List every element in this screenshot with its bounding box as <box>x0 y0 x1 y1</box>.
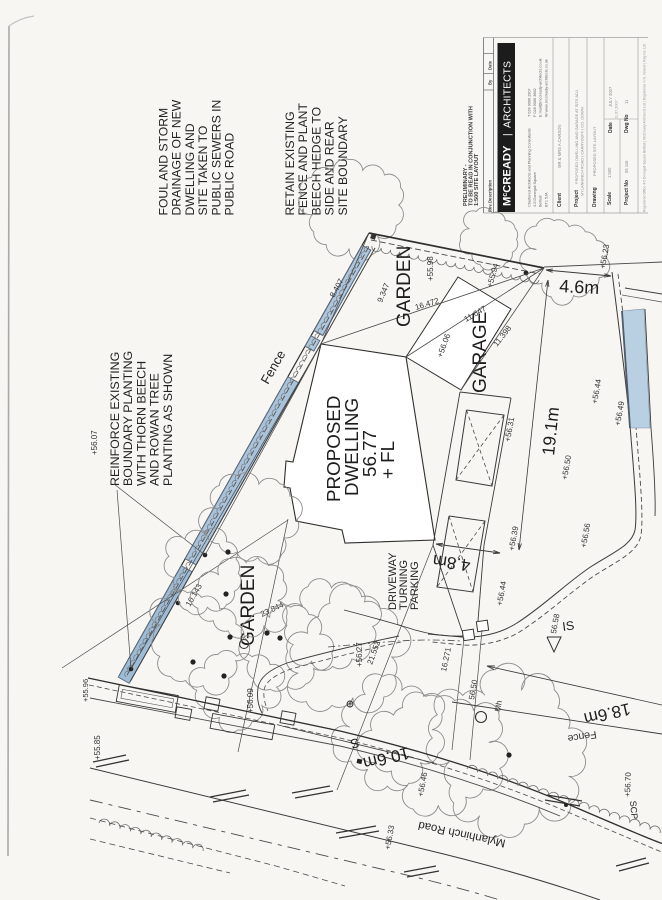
svg-text:DWELLING AND: DWELLING AND <box>183 123 197 215</box>
svg-text:PUBLIC SEWERS IN: PUBLIC SEWERS IN <box>209 100 223 216</box>
svg-text:FOUL AND STORM: FOUL AND STORM <box>157 108 171 216</box>
svg-text:AND ROWAN TREE: AND ROWAN TREE <box>148 373 162 486</box>
svg-text:Belfast: Belfast <box>539 194 543 207</box>
svg-text:By: By <box>488 79 493 85</box>
svg-text:PROPOSED SITE LAYOUT: PROPOSED SITE LAYOUT <box>592 126 597 176</box>
svg-text:+ FL: + FL <box>377 441 398 479</box>
svg-text:RETAIN EXISTING: RETAIN EXISTING <box>283 111 297 215</box>
svg-text:1:500 SITE LAYOUT: 1:500 SITE LAYOUT <box>474 153 480 206</box>
svg-text:Rev.: Rev. <box>488 203 493 212</box>
svg-text:ARCHITECTS: ARCHITECTS <box>503 61 514 128</box>
svg-text:11.07.2007: 11.07.2007 <box>615 100 619 119</box>
svg-text:Chartered Architects and Plann: Chartered Architects and Planning Consul… <box>528 128 532 207</box>
svg-text:SCP: SCP <box>628 800 640 819</box>
svg-text:PROPOSED DWELLING AND GARAGE A: PROPOSED DWELLING AND GARAGE AT SITE ADJ… <box>574 89 579 184</box>
svg-text:Date: Date <box>488 60 493 70</box>
svg-text:BT1 5JA: BT1 5JA <box>544 192 548 207</box>
svg-text:11: 11 <box>624 99 629 104</box>
svg-text:+55.98: +55.98 <box>426 256 435 281</box>
svg-text:BEECH HEDGE TO: BEECH HEDGE TO <box>309 107 323 216</box>
svg-text:PARKING: PARKING <box>409 561 421 610</box>
svg-text:4.6m: 4.6m <box>559 276 600 298</box>
svg-text:Registered Office 4-5 Donegall: Registered Office 4-5 Donegall Square Be… <box>643 44 647 212</box>
svg-text:FENCE AND PLANT: FENCE AND PLANT <box>296 103 310 216</box>
svg-text:T 028 9066 2907: T 028 9066 2907 <box>528 88 532 117</box>
svg-text:MR & MRS A CARSON: MR & MRS A CARSON <box>557 124 562 168</box>
svg-text:F 028 9066 3862: F 028 9066 3862 <box>533 88 537 117</box>
svg-text:|: | <box>503 133 514 136</box>
svg-text:DRAINAGE OF NEW: DRAINAGE OF NEW <box>170 99 184 215</box>
svg-text:GARDEN: GARDEN <box>394 246 415 327</box>
svg-text:Mh: Mh <box>493 700 504 713</box>
svg-text:Project No: Project No <box>624 180 630 205</box>
svg-text:MYLANHINCH ROAD | CARRYDUFF: MYLANHINCH ROAD | CARRYDUFF | CO. DOWN <box>580 107 585 196</box>
svg-text:+56.07: +56.07 <box>90 430 99 455</box>
svg-text:McCREADY: McCREADY <box>502 145 514 206</box>
svg-text:Dwg No: Dwg No <box>624 114 630 133</box>
svg-text:1:500: 1:500 <box>607 167 612 178</box>
svg-text:+56.70: +56.70 <box>623 772 633 798</box>
svg-text:GARAGE: GARAGE <box>470 312 491 393</box>
svg-text:PLANTING AS SHOWN: PLANTING AS SHOWN <box>161 354 175 486</box>
svg-text:SITE TAKEN TO: SITE TAKEN TO <box>196 126 210 216</box>
svg-text:IS: IS <box>561 618 575 634</box>
svg-text:Drawing: Drawing <box>592 187 598 207</box>
svg-text:E mail@mccready-architects.co.: E mail@mccready-architects.co.uk <box>539 58 543 117</box>
svg-text:PUBLIC ROAD: PUBLIC ROAD <box>223 133 237 216</box>
svg-text:SITE BOUNDARY: SITE BOUNDARY <box>336 116 350 215</box>
svg-text:BOUNDARY PLANTING: BOUNDARY PLANTING <box>121 351 135 486</box>
svg-text:Client: Client <box>557 193 563 207</box>
svg-text:+56.27: +56.27 <box>355 642 364 667</box>
svg-text:+55.85: +55.85 <box>93 735 102 760</box>
svg-text:+55.96: +55.96 <box>81 679 90 702</box>
svg-text:REINFORCE EXISTING: REINFORCE EXISTING <box>108 352 122 486</box>
svg-text:+56.09: +56.09 <box>246 688 255 713</box>
svg-text:Scale: Scale <box>607 192 613 205</box>
svg-text:4-5 Donegall Square: 4-5 Donegall Square <box>533 172 537 207</box>
svg-text:W www.mccready-architects.co.u: W www.mccready-architects.co.uk <box>544 59 548 117</box>
svg-text:Date: Date <box>608 122 614 133</box>
svg-text:JULY 2007: JULY 2007 <box>608 86 613 107</box>
svg-text:Description: Description <box>488 180 493 203</box>
svg-text:06 116: 06 116 <box>624 160 629 173</box>
svg-text:WITH THORN BEECH: WITH THORN BEECH <box>134 361 148 486</box>
